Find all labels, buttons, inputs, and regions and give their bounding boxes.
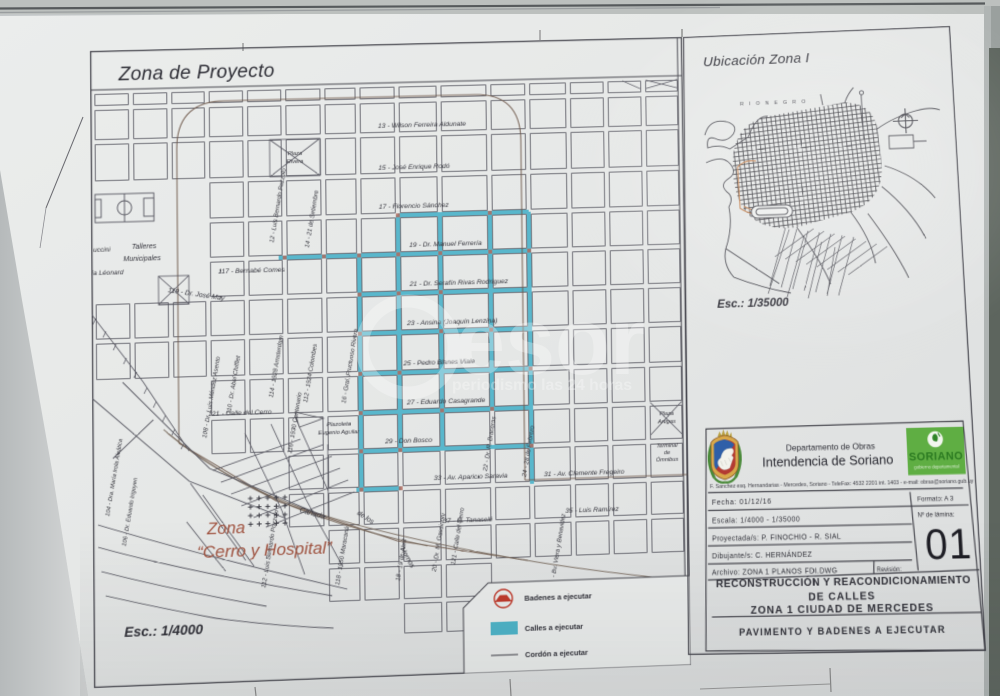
svg-text:01: 01 <box>924 520 973 568</box>
svg-text:Zona de Proyecto: Zona de Proyecto <box>117 61 274 86</box>
svg-text:Nº de lámina:: Nº de lámina: <box>917 512 955 520</box>
svg-text:F. Sanchez esq. Hernandarias -: F. Sanchez esq. Hernandarias - Mercedes,… <box>710 478 975 489</box>
svg-text:Revisión:: Revisión: <box>877 566 902 574</box>
svg-text:Zona: Zona <box>206 518 245 538</box>
svg-text:Municipales: Municipales <box>123 255 161 263</box>
svg-text:Intendencia de Soriano: Intendencia de Soriano <box>762 454 894 471</box>
svg-text:27 - Eduardo Casagrande: 27 - Eduardo Casagrande <box>406 397 486 407</box>
svg-text:29 - Don Bosco: 29 - Don Bosco <box>384 437 432 446</box>
svg-text:Formato: A 3: Formato: A 3 <box>917 496 954 504</box>
svg-text:Escala: 1/4000 - 1/35000: Escala: 1/4000 - 1/35000 <box>712 515 801 525</box>
svg-text:117 - Bernabé Comes: 117 - Bernabé Comes <box>218 267 285 276</box>
svg-text:Esc.: 1/35000: Esc.: 1/35000 <box>717 296 789 311</box>
svg-text:Ómnibus: Ómnibus <box>656 456 678 464</box>
svg-text:Departamento de Obras: Departamento de Obras <box>786 441 876 454</box>
svg-text:119 - Dr. José May: 119 - Dr. José May <box>167 287 225 302</box>
svg-text:17 - Florencio Sánchez: 17 - Florencio Sánchez <box>379 202 450 211</box>
svg-text:Artigas: Artigas <box>657 419 676 426</box>
svg-text:Rivera: Rivera <box>286 159 304 165</box>
svg-text:121 - Calle del Cerro: 121 - Calle del Cerro <box>450 507 466 566</box>
svg-text:35 - Luis Ramírez: 35 - Luis Ramírez <box>565 506 619 515</box>
svg-text:de los: de los <box>356 510 376 526</box>
svg-text:110 - Dr. Abel Chifflet: 110 - Dr. Abel Chifflet <box>226 355 243 414</box>
svg-text:PAVIMENTO Y BADENES A EJECUTAR: PAVIMENTO Y BADENES A EJECUTAR <box>739 624 946 638</box>
svg-text:Plazoleta: Plazoleta <box>327 421 352 428</box>
svg-text:15 - José Enrique Rodó: 15 - José Enrique Rodó <box>378 163 450 172</box>
svg-text:Plaza: Plaza <box>659 411 674 417</box>
svg-text:Esc.: 1/4000: Esc.: 1/4000 <box>124 622 203 640</box>
svg-text:19 - Dr. Manuel Ferrería: 19 - Dr. Manuel Ferrería <box>409 240 482 249</box>
svg-text:104 - Dra. María Irola Aleátic: 104 - Dra. María Irola Aleática <box>105 438 124 517</box>
svg-text:Ubicación Zona I: Ubicación Zona I <box>703 50 810 70</box>
svg-text:Fecha: 01/12/16: Fecha: 01/12/16 <box>712 498 772 508</box>
svg-text:13 - Wilson Ferreira Aldunate: 13 - Wilson Ferreira Aldunate <box>378 121 466 130</box>
svg-text:121 - Calle del Cerro: 121 - Calle del Cerro <box>208 409 272 418</box>
svg-text:ía Léonard: ía Léonard <box>91 269 123 277</box>
svg-text:33 - Av. Aparicio Saravia: 33 - Av. Aparicio Saravia <box>434 473 508 482</box>
svg-text:Eugenio Aguilar: Eugenio Aguilar <box>318 429 360 436</box>
svg-text:gobierno departamental: gobierno departamental <box>914 464 959 470</box>
svg-text:23 - Ansina (Joaquín Lenzina): 23 - Ansina (Joaquín Lenzina) <box>406 318 498 328</box>
svg-text:- Bv. Viera y Benavidez: - Bv. Viera y Benavidez <box>550 512 567 577</box>
svg-text:Terminal: Terminal <box>656 443 678 450</box>
svg-text:12 - Luis Bernardo Pozzolo: 12 - Luis Bernardo Pozzolo <box>269 168 288 244</box>
svg-text:114 - 1928 Amsterdam: 114 - 1928 Amsterdam <box>268 335 285 398</box>
svg-text:Talleres: Talleres <box>132 243 157 251</box>
svg-text:Plaza: Plaza <box>288 151 303 157</box>
svg-text:R I O N E G R O: R I O N E G R O <box>740 99 808 108</box>
svg-text:Cañada: Cañada <box>298 505 326 521</box>
svg-text:37 - R. Tanaselli: 37 - R. Tanaselli <box>443 516 493 525</box>
svg-text:DE CALLES: DE CALLES <box>808 590 875 603</box>
svg-text:de: de <box>664 450 670 456</box>
svg-text:16 - Gral. Fructuoso Rivera: 16 - Gral. Fructuoso Rivera <box>341 328 360 404</box>
svg-text:SORIANO: SORIANO <box>909 450 964 464</box>
svg-text:Proyectada/s: P. FINOCHIO - R.: Proyectada/s: P. FINOCHIO - R. SIAL <box>712 533 842 544</box>
svg-text:uccini: uccini <box>93 246 111 253</box>
svg-text:Dibujante/s: C. HERNÁNDEZ: Dibujante/s: C. HERNÁNDEZ <box>712 551 812 561</box>
svg-text:14 - 21 de Setiembre: 14 - 21 de Setiembre <box>304 189 321 248</box>
svg-text:25 - Pedro Blanes Viale: 25 - Pedro Blanes Viale <box>402 358 475 367</box>
